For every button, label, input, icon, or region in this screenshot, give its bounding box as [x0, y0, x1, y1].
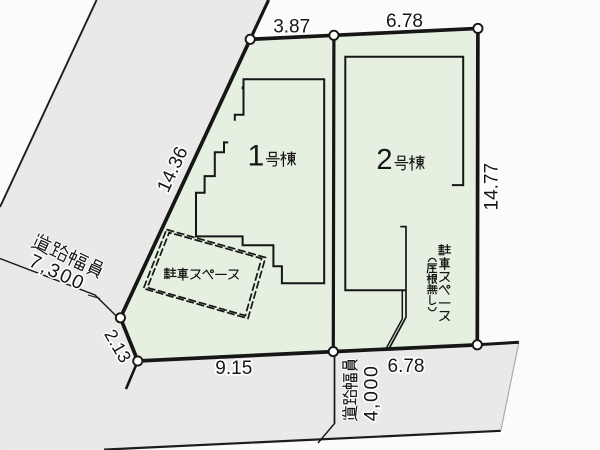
svg-text:1: 1 [247, 139, 264, 172]
svg-text:9.15: 9.15 [215, 358, 252, 379]
svg-text:6.78: 6.78 [388, 356, 425, 377]
svg-text:3.87: 3.87 [273, 17, 310, 38]
svg-text:14.77: 14.77 [482, 163, 503, 211]
svg-text:2: 2 [376, 144, 392, 176]
svg-text:6.78: 6.78 [386, 11, 423, 32]
svg-text:4,000: 4,000 [361, 365, 383, 422]
